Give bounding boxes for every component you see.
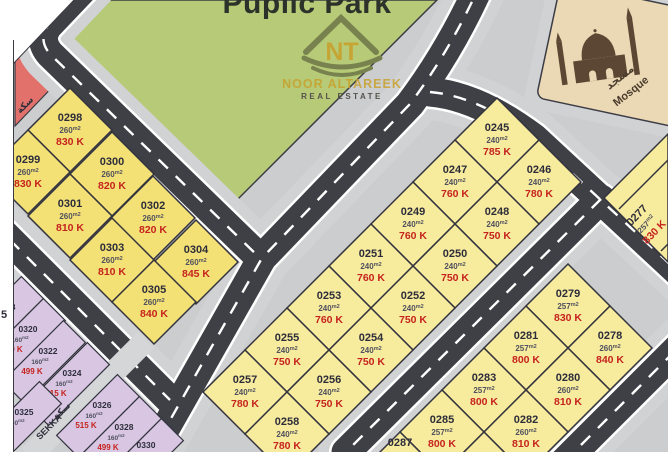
plot-number: 0282 (514, 414, 538, 426)
plot-price: 760 K (399, 230, 427, 242)
plot-price: 780 K (231, 398, 259, 410)
plot-price: 750 K (483, 230, 511, 242)
plot-number: 0287 (388, 437, 412, 449)
plot-number: 0256 (317, 374, 341, 386)
plot-price: 750 K (399, 314, 427, 326)
plot-number: 0301 (58, 198, 82, 210)
plot-price: 499 K (97, 443, 119, 452)
plot-price: 820 K (98, 180, 126, 192)
plot-price: 820 K (139, 224, 167, 236)
plot-number: 0281 (514, 330, 538, 342)
plot-number: 0304 (184, 244, 209, 256)
plot-number: 0279 (556, 288, 580, 300)
plot-number: 0324 (63, 368, 82, 378)
plot-number: 0280 (556, 372, 580, 384)
plot-number: 0326 (93, 400, 112, 410)
plot-price: 810 K (512, 438, 540, 450)
plot-price: 760 K (441, 188, 469, 200)
plot-price: 780 K (525, 188, 553, 200)
logo-name: NOOR ALTAREEK (282, 77, 402, 91)
plot-price: 830 K (14, 178, 42, 190)
margin-text-fragment: 5 (1, 309, 7, 321)
plot-number: 0285 (430, 414, 454, 426)
logo-monogram: NT (325, 38, 358, 66)
plot-price: 840 K (140, 308, 168, 320)
plot-number: 0255 (275, 332, 299, 344)
plot-price: 750 K (273, 356, 301, 368)
plot-price: 760 K (315, 314, 343, 326)
plot-number: 0303 (100, 242, 124, 254)
plot-price: 830 K (554, 312, 582, 324)
plot-price: 750 K (441, 272, 469, 284)
plot-number: 0247 (443, 164, 467, 176)
plot-number: 0283 (472, 372, 496, 384)
plot-number: 0305 (142, 284, 166, 296)
plot-number: 0252 (401, 290, 425, 302)
plot-price: 800 K (470, 396, 498, 408)
plot-price: 810 K (56, 222, 84, 234)
plot-number: 0320 (19, 324, 38, 334)
plot-price: 840 K (596, 354, 624, 366)
plot-price: 810 K (98, 266, 126, 278)
plot-price: 800 K (512, 354, 540, 366)
plot-number: 0330 (137, 440, 156, 450)
plot-number: 0250 (443, 248, 467, 260)
plot-price: 780 K (273, 440, 301, 452)
plot-number: 0302 (141, 200, 165, 212)
plot-number: 0254 (359, 332, 384, 344)
plot-number: 0251 (359, 248, 383, 260)
plot-number: 0325 (15, 407, 34, 417)
plot-price: 760 K (357, 272, 385, 284)
plot-number: 0258 (275, 416, 299, 428)
plot-price: 845 K (182, 268, 210, 280)
plot-number: 0245 (485, 122, 509, 134)
plot-number: 0298 (58, 112, 82, 124)
logo-tagline: REAL ESTATE (301, 92, 383, 101)
park-title: Puplic Park (223, 0, 392, 20)
plot-number: 0257 (233, 374, 257, 386)
plot-price: 800 K (428, 438, 456, 450)
plot-number: 0246 (527, 164, 551, 176)
plot-number: 0278 (598, 330, 622, 342)
plot-number: 0322 (39, 346, 58, 356)
plot-number: 0328 (115, 422, 134, 432)
plot-price: 515 K (75, 421, 97, 430)
plot-number: 0248 (485, 206, 509, 218)
plot-map: مسجد Mosque 0298260m2830 K0299260m2830 K… (0, 0, 668, 452)
plot-price: 830 K (56, 136, 84, 148)
plot-price: 750 K (315, 398, 343, 410)
plot-number: 0299 (16, 154, 40, 166)
plot-price: 810 K (554, 396, 582, 408)
plot-number: 0253 (317, 290, 341, 302)
plot-number: 0249 (401, 206, 425, 218)
plot-price: 785 K (483, 146, 511, 158)
plot-price: 750 K (357, 356, 385, 368)
plot-number: 0300 (100, 156, 124, 168)
plot-price: 499 K (21, 367, 43, 376)
